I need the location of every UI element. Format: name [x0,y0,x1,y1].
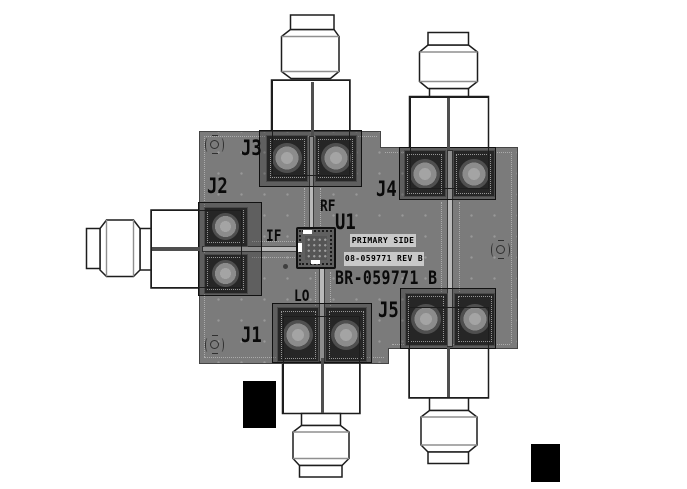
label-rf: RF [320,198,335,214]
label-j3: J3 [241,138,262,159]
pin-mark [298,243,302,252]
ic-u1-footprint [296,227,336,269]
via [283,264,288,269]
board-name: BR-059771 B [335,269,437,288]
ic-via-grid [305,236,327,260]
connector-body-outline [409,307,489,398]
fiducial-right [491,240,510,259]
fiducial-bottom-left [205,335,224,354]
pin1-mark [303,230,312,234]
fiducial-top-left [205,135,224,154]
primary-side-plate: PRIMARY SIDE [350,234,416,248]
pin-mark [311,260,320,264]
label-j5: J5 [378,300,399,321]
label-u1: U1 [335,212,356,233]
via-fence [459,202,460,298]
connector-body-outline [151,210,242,288]
connector-body-outline [283,316,361,414]
via-fence [511,152,512,343]
via-fence [304,188,305,228]
via-fence [441,202,442,298]
pcb-id-plate: 08-059771 REV B [344,252,424,266]
label-j4: J4 [376,179,397,200]
label-j1: J1 [241,325,262,346]
black-marker-right [531,444,560,482]
connector-body-outline [410,97,489,190]
label-lo: LO [294,288,309,304]
black-marker-left [243,381,276,428]
connector-body-outline [272,80,351,176]
pcb-assembly-drawing: J3 J2 J4 J5 J1 U1 RF IF LO PRIMARY SIDE … [0,0,687,489]
label-j2: J2 [207,176,228,197]
label-if: IF [266,228,281,244]
